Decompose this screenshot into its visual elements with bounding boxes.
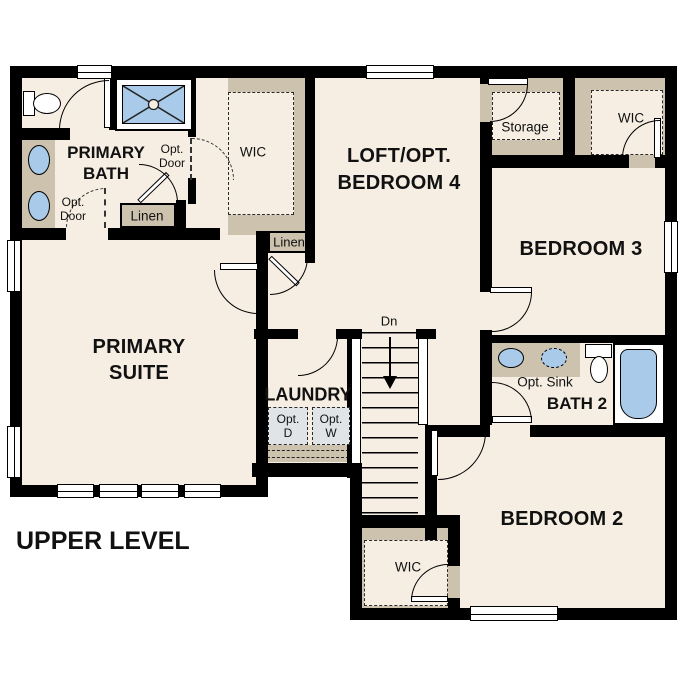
bathtub [620, 349, 657, 419]
shower [115, 78, 193, 131]
wall-wic2-right-upper [448, 528, 460, 566]
optional-washer: Opt. W [312, 407, 350, 445]
stair-down-arrow-shaft [389, 337, 391, 377]
window [184, 484, 221, 498]
window [366, 65, 434, 79]
optional-dryer: Opt. D [268, 407, 308, 445]
closet-label-linen-hall: Linen [273, 235, 305, 250]
room-label-primary-suite: PRIMARY SUITE [74, 334, 204, 386]
wall-lower-left [350, 477, 362, 620]
room-label-loft: LOFT/OPT. BEDROOM 4 [309, 143, 489, 197]
wall-right [665, 66, 677, 620]
page-title: UPPER LEVEL [16, 527, 190, 556]
closet-label-linen-bath: Linen [130, 209, 163, 224]
shower-glass-icon [123, 86, 184, 123]
wall-stair-top-right [416, 329, 436, 339]
wall-hall-stub [256, 231, 268, 263]
optional-dryer-label: Opt. D [273, 412, 303, 440]
toilet-bowl [590, 356, 608, 383]
closet-label-wic-bedroom3: WIC [618, 111, 644, 126]
window [141, 484, 179, 498]
window [7, 240, 21, 292]
window [470, 606, 558, 621]
annotation-opt-sink: Opt. Sink [517, 375, 573, 390]
wall-bath2-bottom-right [530, 425, 665, 437]
window [7, 426, 21, 478]
room-label-bedroom3: BEDROOM 3 [520, 236, 643, 262]
optional-washer-label: Opt. W [316, 412, 346, 440]
window [99, 484, 138, 498]
room-label-bedroom2: BEDROOM 2 [501, 506, 624, 532]
closet-label-wic-bedroom2: WIC [395, 560, 421, 575]
sink [28, 145, 50, 175]
closet-label-wic-primary: WIC [240, 145, 266, 160]
room-label-primary-bath: PRIMARY BATH [56, 142, 156, 184]
wall-bath-bottom-right [108, 228, 220, 240]
laundry-counter [264, 445, 352, 462]
wall-wic3-bottom-left [575, 155, 629, 168]
room-label-bath2: BATH 2 [547, 394, 607, 414]
wall-bath2-top [480, 335, 665, 343]
toilet-bowl [33, 93, 61, 114]
window [664, 221, 678, 273]
wall-stair-bottom [350, 515, 460, 528]
door-leaf [220, 263, 258, 270]
wall-suite-bottom [10, 485, 268, 497]
wall-wic2-right-lower [448, 598, 460, 610]
stair-down-arrow-head [383, 376, 397, 389]
wall-bath-bottom-left [10, 228, 66, 240]
wall-laundry-bottom [252, 463, 362, 477]
wall-laundry-top-left [254, 329, 298, 339]
window [77, 65, 112, 79]
optional-sink [541, 348, 567, 368]
wall-bath-wic-lower [188, 178, 196, 204]
sink [28, 191, 50, 221]
wall-bath2-left [480, 343, 492, 425]
wall-storage-bottom [480, 155, 575, 168]
window [57, 484, 94, 498]
annotation-opt-door-wic: Opt. Door [154, 142, 190, 170]
stair-stringer-right [418, 332, 428, 425]
room-label-laundry: LAUNDRY [264, 385, 351, 406]
floor-plan: Opt. D Opt. W PRIMARY BATH WIC Opt. Door… [0, 0, 687, 687]
annotation-stair-direction: Dn [381, 314, 398, 329]
wall-linen-stub [176, 200, 186, 228]
annotation-opt-door-suite: Opt. Door [55, 195, 91, 223]
exterior-notch [268, 477, 350, 497]
door-leaf [431, 430, 438, 476]
sink [498, 348, 524, 368]
laundry-counter-dash [267, 457, 349, 458]
closet-label-storage: Storage [501, 120, 548, 135]
stair-stringer-left [351, 332, 361, 477]
laundry-counter-dash [267, 450, 349, 451]
